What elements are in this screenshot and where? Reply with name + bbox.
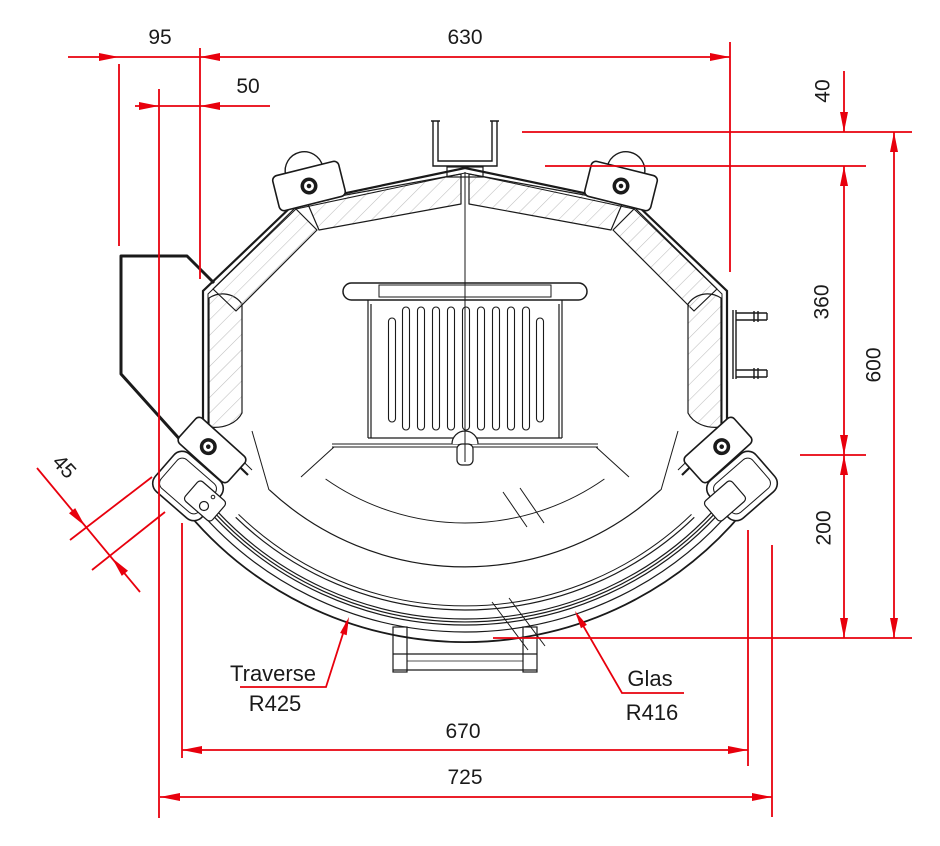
dimension-600-text: 600 (863, 347, 886, 382)
side-pins (733, 310, 767, 379)
dimension-45-text: 45 (48, 451, 81, 484)
label-glas: Glas (627, 666, 672, 691)
dimension-200-text: 200 (813, 510, 836, 545)
dimension-630-text: 630 (447, 26, 482, 49)
grate-slots (389, 307, 544, 430)
label-traverse-radius: R425 (249, 691, 302, 716)
dimension-95-text: 95 (148, 26, 171, 49)
drawing-canvas: 95 50 630 40 360 600 200 45 670 725 Trav… (0, 0, 940, 846)
dimension-40-text: 40 (812, 79, 835, 102)
label-glas-radius: R416 (626, 700, 679, 725)
dimension-360-text: 360 (811, 284, 834, 319)
dimension-725-text: 725 (447, 766, 482, 789)
traverse-arc (188, 513, 743, 642)
label-traverse: Traverse (230, 661, 316, 686)
floor-arc (269, 490, 660, 567)
dimension-670-text: 670 (445, 720, 480, 743)
break-marks (492, 488, 545, 650)
dimension-50-text: 50 (236, 75, 259, 98)
dimension-lines (37, 42, 912, 818)
stove-cross-section-drawing: 95 50 630 40 360 600 200 45 670 725 Trav… (0, 0, 940, 846)
glass-arc (213, 515, 718, 625)
